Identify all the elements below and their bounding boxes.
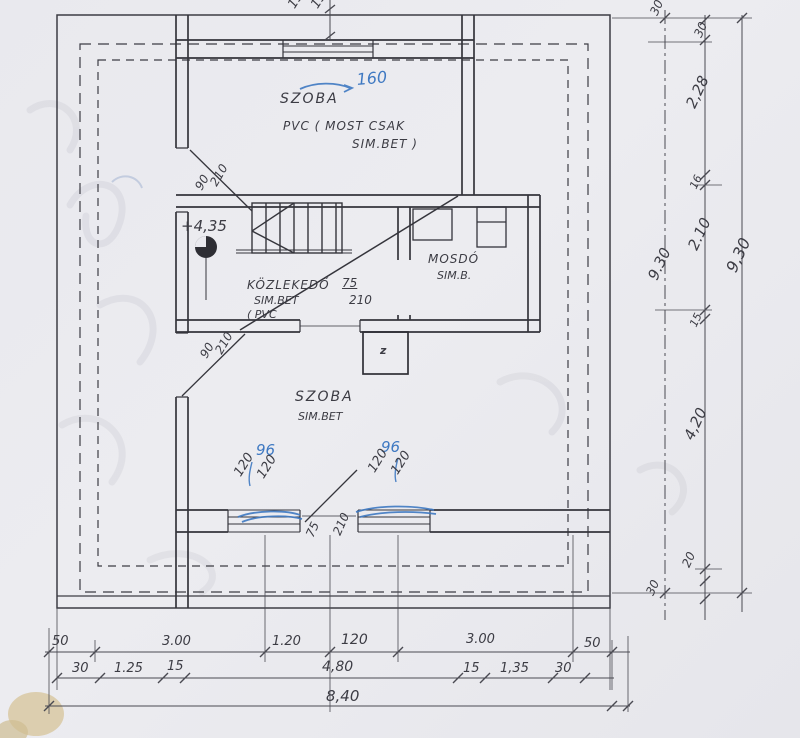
dim-b2-135: 1,35 [500, 662, 529, 675]
dim-door-hall-height: 210 [349, 294, 372, 306]
dim-b1-120-b: 120 [341, 633, 368, 647]
dim-bottom-total: 8,40 [326, 689, 359, 704]
dim-b1-300-left: 3.00 [162, 635, 191, 648]
blue-arrow-top [300, 84, 350, 89]
dim-door-hall-width: 75 [342, 277, 357, 289]
dim-b2-30-right: 30 [555, 662, 572, 675]
sink-fixture [413, 209, 452, 240]
roof-line-inner [98, 60, 568, 566]
level-mark-value: +4,35 [181, 219, 227, 234]
dim-b2-15-right: 15 [463, 662, 480, 675]
washroom-fixtures [413, 207, 506, 247]
dimension-line-top [325, 0, 335, 40]
door-bottom-swing [182, 334, 245, 396]
room-szoba-top-finish-1: PVC ( MOST CSAK [283, 120, 405, 132]
room-mosdo-name: MOSDÓ [428, 253, 479, 265]
dim-b2-480: 4,80 [322, 660, 353, 674]
floor-plan-sheet: 150 150 160 SZOBA PVC ( MOST CSAK SIM.BE… [0, 0, 800, 738]
room-szoba-bottom-name: SZOBA [295, 390, 354, 404]
room-kozlekedo-finish-2: ( PVC [247, 309, 277, 320]
room-szoba-top-finish-2: SIM.BET ) [352, 138, 418, 150]
dim-b1-120-a: 1.20 [272, 635, 301, 648]
wc-fixture [477, 207, 506, 247]
room-kozlekedo-name: KÖZLEKEDŐ [247, 279, 330, 291]
dim-b2-125: 1.25 [114, 662, 143, 675]
blue-underline-right [356, 506, 434, 512]
blue-note-window-top: 160 [356, 69, 388, 88]
dim-b2-15-left: 15 [167, 660, 184, 673]
dim-b1-50-right: 50 [584, 637, 601, 650]
dim-b1-50-left: 50 [52, 635, 69, 648]
floor-plan-drawing [0, 0, 800, 738]
scan-ghost-blue [112, 176, 142, 188]
dim-b1-300-right: 3.00 [466, 633, 495, 646]
dim-b2-30-left: 30 [72, 662, 89, 675]
room-kozlekedo-finish-1: SIM.BET [254, 295, 298, 306]
room-szoba-top-name: SZOBA [280, 92, 339, 106]
room-szoba-bottom-finish: SIM.BET [298, 411, 342, 422]
room-mosdo-finish: SIM.B. [437, 270, 471, 281]
level-marker-symbol [195, 236, 217, 300]
walls [176, 15, 610, 608]
chimney-mark: z [380, 345, 386, 356]
